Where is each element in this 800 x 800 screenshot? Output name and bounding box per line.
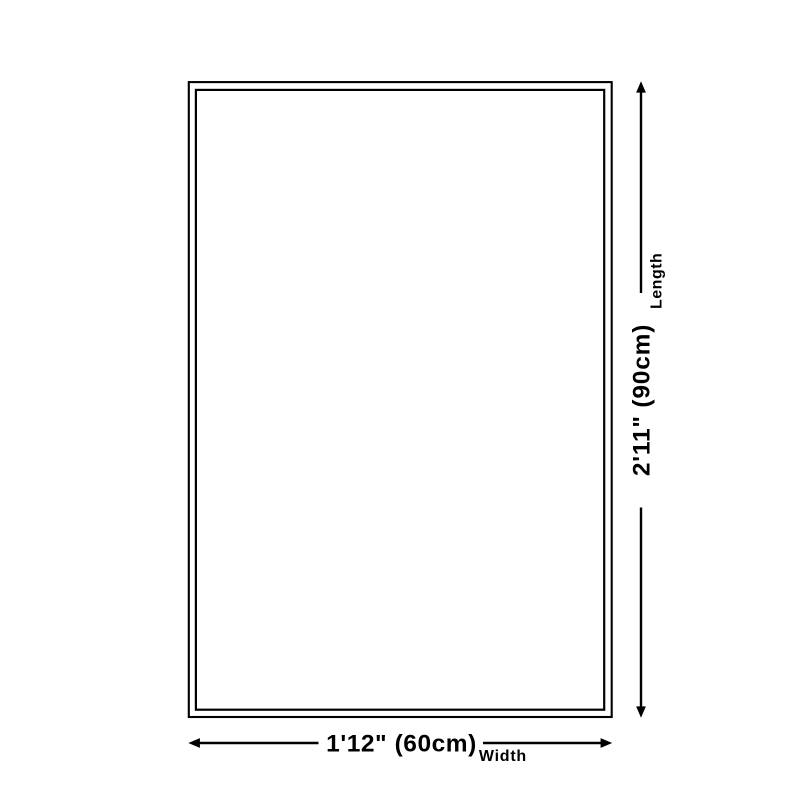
svg-text:Width: Width bbox=[479, 748, 527, 765]
svg-text:2'11" (90cm): 2'11" (90cm) bbox=[629, 324, 656, 476]
svg-text:1'12" (60cm): 1'12" (60cm) bbox=[326, 730, 477, 757]
svg-text:Length: Length bbox=[649, 253, 666, 309]
